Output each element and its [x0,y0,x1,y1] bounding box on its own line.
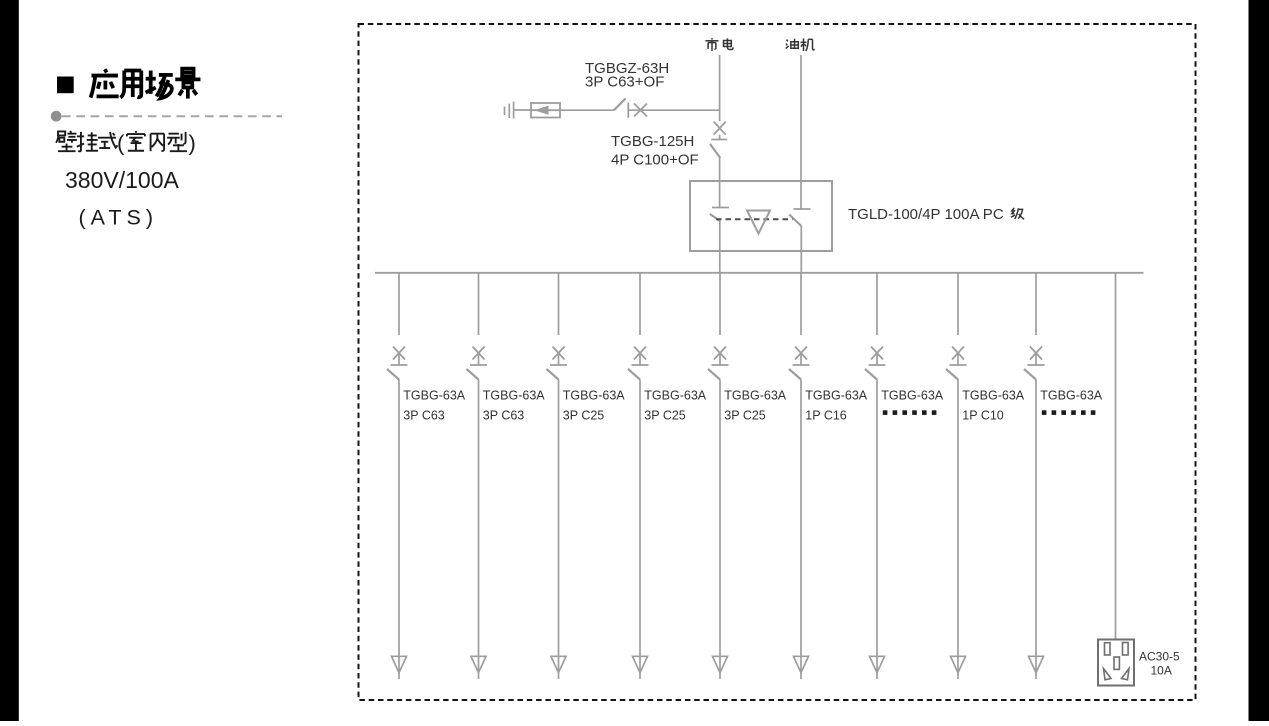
svg-text:TGBG-63A: TGBG-63A [962,389,1024,403]
svg-text:TGBG-63A: TGBG-63A [483,389,545,403]
svg-text:TGBG-63A: TGBG-63A [805,389,867,403]
svg-text:3P C63+OF: 3P C63+OF [585,74,664,91]
svg-text:10A: 10A [1151,664,1172,678]
svg-text:3P C63: 3P C63 [483,409,525,423]
svg-text:AC30-5: AC30-5 [1139,650,1180,664]
svg-text:1P C16: 1P C16 [805,409,847,423]
svg-text:1P C10: 1P C10 [962,409,1004,423]
svg-text:TGLD-100/4P 100A PC: TGLD-100/4P 100A PC [848,206,1004,223]
svg-text:TGBG-63A: TGBG-63A [1040,389,1102,403]
svg-text:(ATS): (ATS) [79,206,159,230]
svg-text:TGBG-63A: TGBG-63A [881,389,943,403]
svg-text:TGBG-63A: TGBG-63A [563,389,625,403]
svg-text:TGBG-63A: TGBG-63A [724,389,786,403]
svg-text:3P C25: 3P C25 [644,409,686,423]
svg-text:380V/100A: 380V/100A [65,167,179,193]
svg-text:TGBG-63A: TGBG-63A [644,389,706,403]
svg-text:3P C63: 3P C63 [403,409,445,423]
svg-text:TGBG-63A: TGBG-63A [403,389,465,403]
svg-text:3P C25: 3P C25 [563,409,605,423]
svg-text:(: ( [117,131,125,156]
svg-text:3P C25: 3P C25 [724,409,766,423]
svg-text:4P C100+OF: 4P C100+OF [611,152,699,169]
svg-text:): ) [189,131,196,156]
svg-text:TGBG-125H: TGBG-125H [611,133,694,150]
